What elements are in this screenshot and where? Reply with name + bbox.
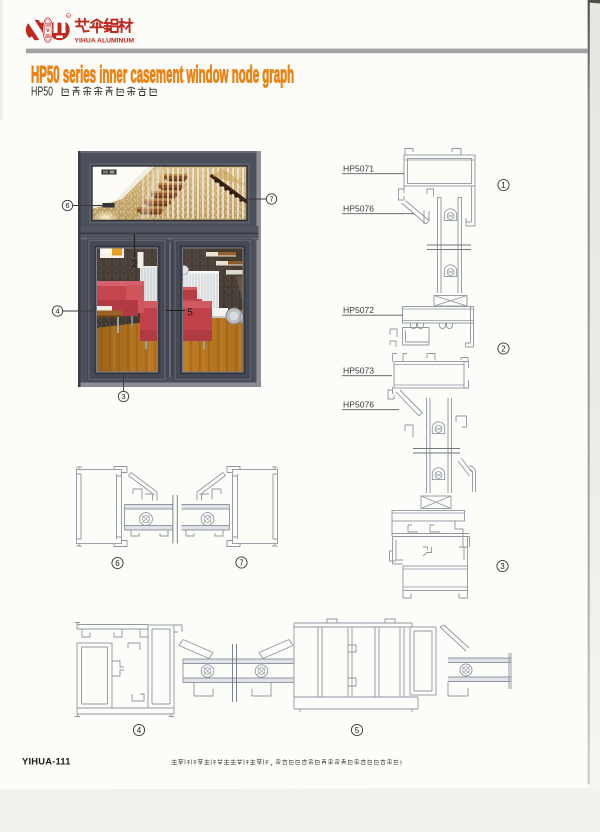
svg-text:HP5073: HP5073 xyxy=(343,366,374,376)
svg-text:4: 4 xyxy=(137,726,142,735)
svg-text:3: 3 xyxy=(500,562,505,571)
svg-text:HP5076: HP5076 xyxy=(343,400,374,410)
svg-text:5: 5 xyxy=(355,726,360,735)
svg-text:6: 6 xyxy=(115,559,120,568)
svg-text:HP5072: HP5072 xyxy=(343,305,374,315)
svg-text:7: 7 xyxy=(239,558,244,567)
svg-text:HP50: HP50 xyxy=(31,85,53,99)
svg-text:2: 2 xyxy=(501,344,506,353)
svg-text:2: 2 xyxy=(132,259,138,270)
svg-text:HP5071: HP5071 xyxy=(343,164,374,174)
svg-text:4: 4 xyxy=(55,307,59,316)
svg-text:HP5076: HP5076 xyxy=(343,204,374,214)
svg-text:R: R xyxy=(67,14,69,18)
svg-text:YIHUA ALUMINUM: YIHUA ALUMINUM xyxy=(75,38,135,45)
svg-text:1: 1 xyxy=(501,181,506,190)
svg-text:YIHUA-111: YIHUA-111 xyxy=(22,756,71,767)
svg-text:6: 6 xyxy=(65,201,69,210)
svg-text:!: ! xyxy=(400,760,402,767)
svg-text:HP50 series inner casement win: HP50 series inner casement window node g… xyxy=(31,61,294,88)
svg-text:3: 3 xyxy=(121,392,125,401)
svg-text:7: 7 xyxy=(269,195,273,204)
svg-text:5: 5 xyxy=(187,308,193,319)
